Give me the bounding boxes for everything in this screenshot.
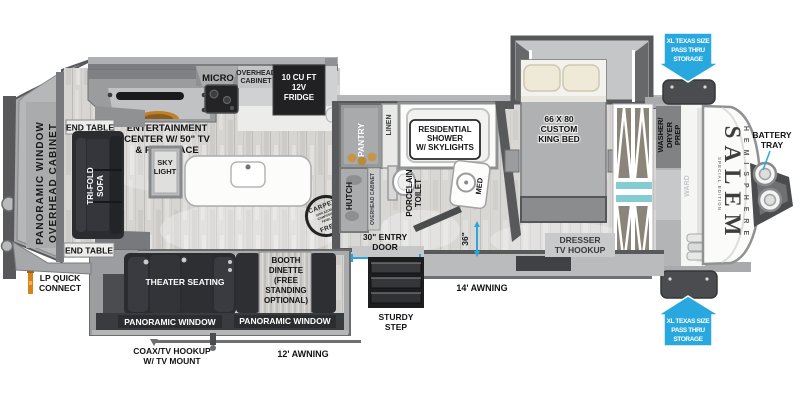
svg-text:STORAGE: STORAGE bbox=[673, 336, 703, 343]
svg-text:W/ SKYLIGHTS: W/ SKYLIGHTS bbox=[416, 143, 474, 152]
svg-text:BATTERY: BATTERY bbox=[752, 130, 792, 140]
svg-text:PASS THRU: PASS THRU bbox=[671, 47, 705, 54]
svg-text:PANORAMIC WINDOW: PANORAMIC WINDOW bbox=[239, 316, 331, 326]
svg-text:W/ TV MOUNT: W/ TV MOUNT bbox=[143, 356, 201, 366]
svg-text:END TABLE: END TABLE bbox=[65, 246, 113, 256]
svg-text:LINEN: LINEN bbox=[386, 115, 393, 136]
svg-text:66 X 80: 66 X 80 bbox=[544, 114, 574, 124]
svg-text:STANDING: STANDING bbox=[265, 286, 306, 295]
svg-text:DOOR: DOOR bbox=[372, 242, 398, 252]
svg-text:PANTRY: PANTRY bbox=[356, 123, 366, 157]
svg-text:(FREE: (FREE bbox=[274, 276, 299, 285]
svg-text:SPECIAL EDITION: SPECIAL EDITION bbox=[717, 157, 722, 211]
svg-text:SOFA: SOFA bbox=[96, 175, 105, 197]
svg-text:OVERHEAD: OVERHEAD bbox=[236, 70, 276, 77]
svg-text:BOOTH: BOOTH bbox=[272, 256, 301, 265]
svg-text:HEMISPHERE: HEMISPHERE bbox=[742, 126, 749, 242]
svg-text:TRI-FOLD: TRI-FOLD bbox=[86, 167, 95, 205]
svg-text:THEATER SEATING: THEATER SEATING bbox=[145, 277, 224, 287]
svg-text:30" ENTRY: 30" ENTRY bbox=[363, 232, 408, 242]
svg-text:CABINET: CABINET bbox=[240, 78, 272, 85]
svg-text:STORAGE: STORAGE bbox=[673, 56, 703, 63]
svg-text:PANORAMIC WINDOW: PANORAMIC WINDOW bbox=[35, 121, 46, 245]
svg-text:SALEM: SALEM bbox=[720, 126, 745, 243]
svg-text:PANORAMIC WINDOW: PANORAMIC WINDOW bbox=[124, 317, 216, 327]
svg-text:STEP: STEP bbox=[385, 322, 408, 332]
svg-text:DINETTE: DINETTE bbox=[269, 266, 304, 275]
svg-text:CONNECT: CONNECT bbox=[39, 283, 82, 293]
svg-text:OVERHEAD CABINET: OVERHEAD CABINET bbox=[370, 173, 376, 225]
svg-text:DRESSER: DRESSER bbox=[559, 235, 600, 245]
svg-text:KING BED: KING BED bbox=[538, 134, 580, 144]
svg-text:TRAY: TRAY bbox=[761, 140, 784, 150]
svg-text:14' AWNING: 14' AWNING bbox=[456, 283, 507, 293]
svg-text:XL TEXAS SIZE: XL TEXAS SIZE bbox=[667, 318, 711, 325]
svg-text:HUTCH: HUTCH bbox=[345, 182, 354, 210]
svg-text:12V: 12V bbox=[292, 83, 307, 92]
svg-text:LP QUICK: LP QUICK bbox=[40, 273, 81, 283]
svg-text:STURDY: STURDY bbox=[379, 312, 414, 322]
svg-text:WARD: WARD bbox=[684, 175, 691, 196]
svg-text:XL TEXAS SIZE: XL TEXAS SIZE bbox=[667, 38, 711, 45]
svg-text:LIGHT: LIGHT bbox=[154, 167, 177, 176]
svg-text:RESIDENTIAL: RESIDENTIAL bbox=[418, 125, 471, 134]
svg-text:12' AWNING: 12' AWNING bbox=[277, 349, 328, 359]
svg-text:SHOWER: SHOWER bbox=[427, 134, 463, 143]
svg-text:PASS THRU: PASS THRU bbox=[671, 327, 705, 334]
svg-text:TOILET: TOILET bbox=[414, 179, 423, 207]
svg-text:TV HOOKUP: TV HOOKUP bbox=[555, 245, 606, 255]
svg-text:36": 36" bbox=[460, 232, 470, 246]
svg-text:SKY: SKY bbox=[157, 158, 172, 167]
svg-text:10 CU FT: 10 CU FT bbox=[282, 73, 317, 82]
svg-text:OVERHEAD CABINET: OVERHEAD CABINET bbox=[48, 123, 59, 243]
svg-text:OPTIONAL): OPTIONAL) bbox=[264, 296, 308, 305]
svg-text:WASHER/: WASHER/ bbox=[656, 117, 665, 153]
svg-text:CUSTOM: CUSTOM bbox=[541, 124, 578, 134]
svg-text:FRIDGE: FRIDGE bbox=[284, 93, 315, 102]
svg-text:COAX/TV HOOKUP: COAX/TV HOOKUP bbox=[133, 346, 211, 356]
svg-text:MICRO: MICRO bbox=[202, 73, 234, 84]
svg-text:PORCELAIN: PORCELAIN bbox=[405, 169, 414, 216]
svg-text:CENTER W/ 50" TV: CENTER W/ 50" TV bbox=[124, 134, 210, 145]
svg-text:PREP: PREP bbox=[673, 125, 682, 145]
